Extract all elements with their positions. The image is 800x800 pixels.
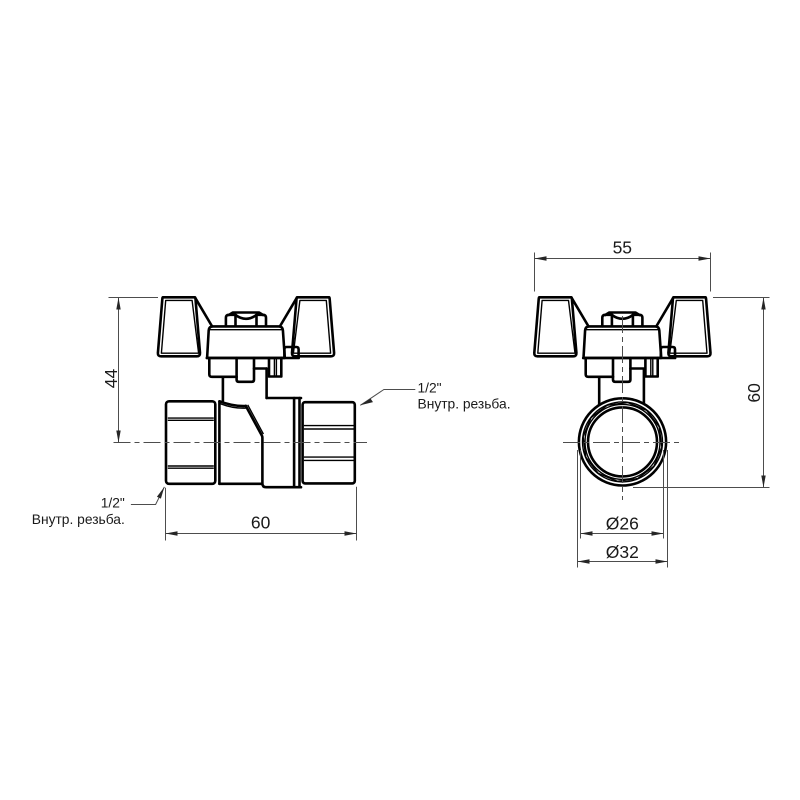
svg-text:55: 55 [613,237,632,257]
svg-text:Внутр. резьба.: Внутр. резьба. [32,512,125,527]
svg-text:Внутр. резьба.: Внутр. резьба. [418,397,511,412]
svg-text:Ø26: Ø26 [606,513,639,533]
svg-text:60: 60 [744,383,764,403]
svg-text:1/2": 1/2" [101,495,125,510]
svg-text:60: 60 [251,513,271,533]
svg-text:1/2": 1/2" [418,381,442,396]
svg-text:44: 44 [101,369,121,389]
svg-text:Ø32: Ø32 [606,542,639,562]
